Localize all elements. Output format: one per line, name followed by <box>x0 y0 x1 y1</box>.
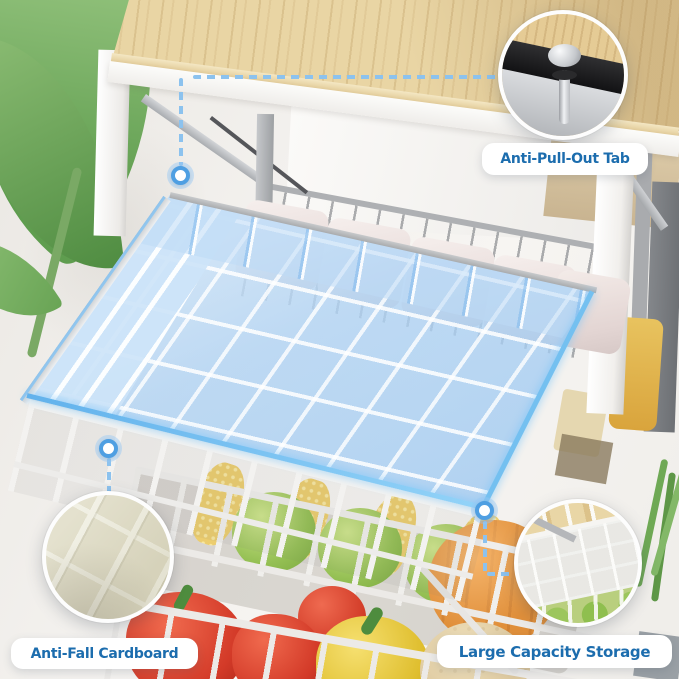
tab-pin-washer <box>552 70 577 80</box>
anti-pull-out-tab-inset <box>498 10 628 140</box>
large-capacity-storage-label: Large Capacity Storage <box>437 635 672 668</box>
leader-pin-storage <box>475 501 494 520</box>
leader-pin-basket <box>171 166 190 185</box>
tab-pin-dome <box>548 44 581 67</box>
leader-line-cardboard <box>107 458 111 494</box>
anti-pull-out-tab-label: Anti-Pull-Out Tab <box>482 143 648 175</box>
product-feature-image: Anti-Pull-Out Tab Anti-Fall Cardboard La… <box>0 0 679 679</box>
leader-line-top-vertical <box>179 78 183 166</box>
leader-line-top-horizontal <box>193 75 505 79</box>
inset-storage-scene <box>514 499 642 627</box>
leader-line-storage-horizontal <box>487 572 515 576</box>
stored-container-shadow <box>555 434 614 484</box>
leader-pin-cardboard <box>99 439 118 458</box>
anti-fall-cardboard-label: Anti-Fall Cardboard <box>11 638 198 669</box>
anti-fall-cardboard-inset <box>42 491 174 623</box>
leader-line-storage-vertical <box>483 521 487 575</box>
large-capacity-storage-inset <box>514 499 642 627</box>
